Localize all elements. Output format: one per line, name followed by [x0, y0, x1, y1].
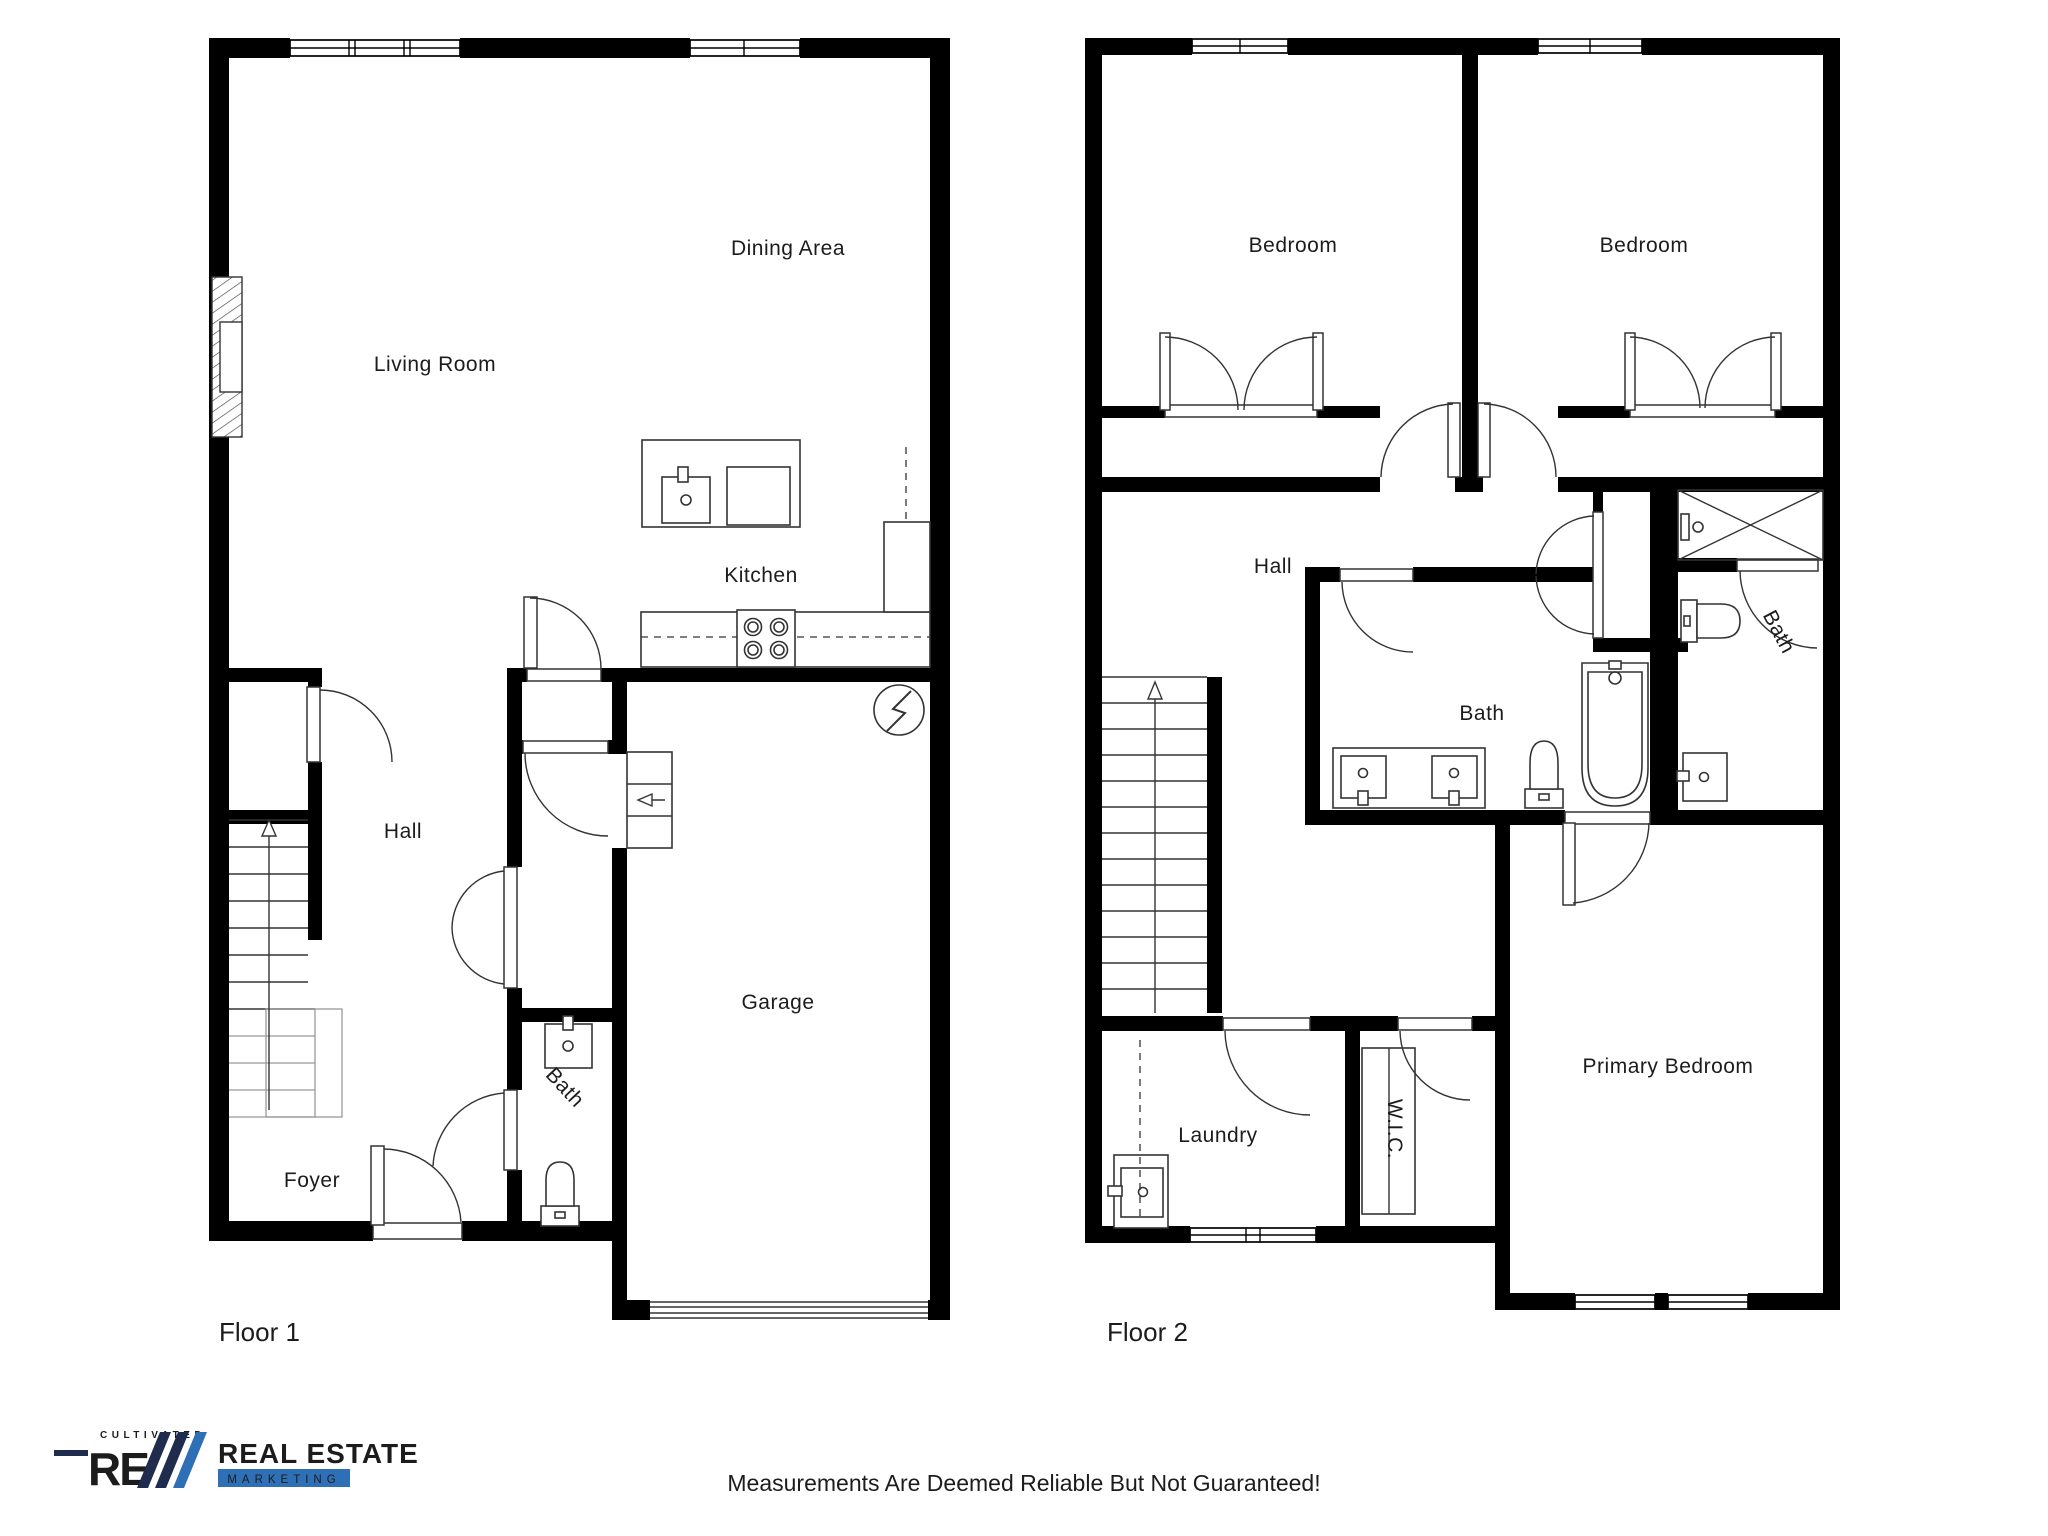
floor2-plan: Bedroom Bedroom Hall Bath Bath Laundry W… — [1085, 38, 1840, 1347]
window — [1538, 39, 1642, 53]
floorplan-page: Living Room Dining Area Kitchen Hall Bat… — [0, 0, 2048, 1536]
window — [690, 40, 800, 56]
bathtub-icon — [1582, 661, 1648, 806]
front-door — [371, 1146, 462, 1239]
door — [523, 741, 608, 836]
logo-tagline: CULTIVATED — [100, 1430, 206, 1441]
sink-icon — [545, 1016, 592, 1068]
floor2-walls — [1085, 38, 1840, 1310]
door — [1563, 812, 1650, 905]
door — [524, 597, 601, 681]
window — [1192, 39, 1288, 53]
electrical-panel-icon — [874, 685, 924, 735]
closet-double-door — [1160, 333, 1323, 417]
window — [1190, 1228, 1316, 1242]
door — [1381, 403, 1460, 477]
disclaimer-text: Measurements Are Deemed Reliable But Not… — [727, 1470, 1320, 1496]
logo-bar — [54, 1450, 88, 1456]
door — [1398, 1018, 1472, 1100]
room-label-laundry: Laundry — [1178, 1124, 1257, 1147]
stove-icon — [737, 610, 795, 667]
logo-subname: MARKETING — [227, 1474, 340, 1486]
room-label-wic: W.I.C. — [1383, 1099, 1406, 1159]
fireplace-icon — [212, 277, 242, 437]
door — [433, 1090, 517, 1170]
room-label-garage: Garage — [741, 991, 814, 1014]
toilet-icon — [1525, 741, 1563, 808]
floorplan-canvas: Living Room Dining Area Kitchen Hall Bat… — [0, 0, 2048, 1536]
stairs-up — [229, 820, 342, 1117]
floor1-title: Floor 1 — [219, 1317, 300, 1347]
floor2-title: Floor 2 — [1107, 1317, 1188, 1347]
room-label-dining-area: Dining Area — [731, 237, 845, 260]
brand-logo: CULTIVATED RE REAL ESTATE MARKETING — [54, 1430, 419, 1495]
toilet-icon — [1681, 600, 1740, 642]
kitchen-island — [642, 440, 800, 527]
room-label-hall-f1: Hall — [384, 820, 422, 843]
floor1-plan: Living Room Dining Area Kitchen Hall Bat… — [209, 38, 950, 1347]
shower-icon — [1678, 490, 1823, 560]
room-label-living-room: Living Room — [374, 353, 496, 376]
garage-steps — [627, 752, 672, 848]
washer-icon — [1108, 1155, 1168, 1228]
door — [1223, 1018, 1310, 1115]
window — [290, 40, 460, 56]
toilet-icon — [541, 1162, 579, 1226]
door — [307, 687, 392, 762]
room-label-bath-f1: Bath — [541, 1063, 589, 1112]
room-label-primary-bedroom: Primary Bedroom — [1583, 1055, 1754, 1078]
room-label-hall-f2: Hall — [1254, 555, 1292, 578]
room-label-bedroom-2: Bedroom — [1600, 234, 1689, 257]
vanity-double-sink — [1333, 748, 1485, 808]
closet-double-door — [452, 867, 517, 988]
stairs-up — [1102, 677, 1207, 1013]
room-label-kitchen: Kitchen — [724, 564, 798, 587]
logo-name: REAL ESTATE — [218, 1438, 419, 1469]
room-label-bath-hall: Bath — [1459, 702, 1504, 725]
door — [1340, 569, 1413, 652]
garage-door — [650, 1301, 928, 1319]
room-label-foyer: Foyer — [284, 1169, 340, 1192]
room-label-bath-right: Bath — [1758, 607, 1800, 658]
sink-icon — [1677, 753, 1727, 801]
room-label-bedroom-1: Bedroom — [1249, 234, 1338, 257]
closet-double-door — [1625, 333, 1781, 417]
door — [1478, 403, 1556, 477]
